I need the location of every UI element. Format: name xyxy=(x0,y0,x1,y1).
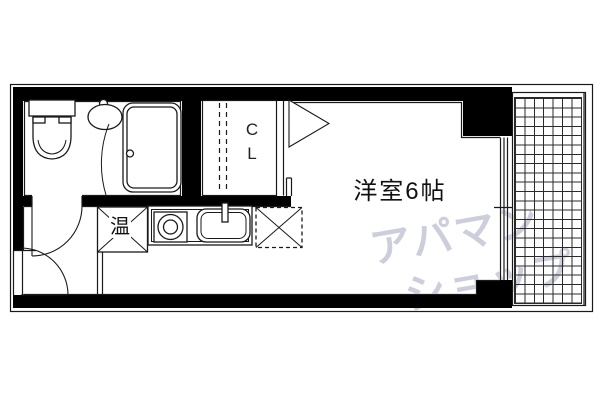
wall-bath-closet-divider xyxy=(182,99,201,206)
entrance-door-frame xyxy=(14,251,23,295)
wall-bottom xyxy=(13,295,479,308)
wall-corner-bottom-right xyxy=(476,280,512,308)
wall-stub-lines xyxy=(287,178,292,196)
wall-top xyxy=(13,87,512,101)
floorplan-canvas: 洋室6帖 C L 温 アパマン ショップ xyxy=(0,0,600,400)
wall-under-bath-closet xyxy=(82,196,291,206)
floorplan-drawing xyxy=(0,0,600,400)
closet-door-triangle-icon xyxy=(289,100,329,147)
bathroom-door-arc xyxy=(32,206,82,256)
bathroom-fixtures xyxy=(29,100,181,196)
closet-label-letter-c: C xyxy=(240,118,264,142)
washplace-divider-curve xyxy=(101,124,109,195)
wall-under-bath-left xyxy=(23,196,32,206)
genkan-partition-lines xyxy=(98,252,103,295)
toilet-icon xyxy=(29,100,75,159)
bathtub-icon xyxy=(123,103,181,192)
bathroom-sink-icon xyxy=(88,100,122,130)
refrigerator-space-icon xyxy=(256,208,302,248)
wall-left xyxy=(13,87,23,251)
room-size-label: 洋室6帖 xyxy=(328,171,472,206)
balcony-grid xyxy=(514,97,582,304)
closet-label: C L xyxy=(240,118,264,166)
balcony-window-lines xyxy=(501,138,508,281)
water-heater-label: 温 xyxy=(109,216,131,238)
wall-corner-top-right xyxy=(463,87,512,136)
closet-label-letter-l: L xyxy=(240,142,264,166)
stove-icon xyxy=(154,212,187,242)
kitchen-sink-icon xyxy=(197,203,250,242)
